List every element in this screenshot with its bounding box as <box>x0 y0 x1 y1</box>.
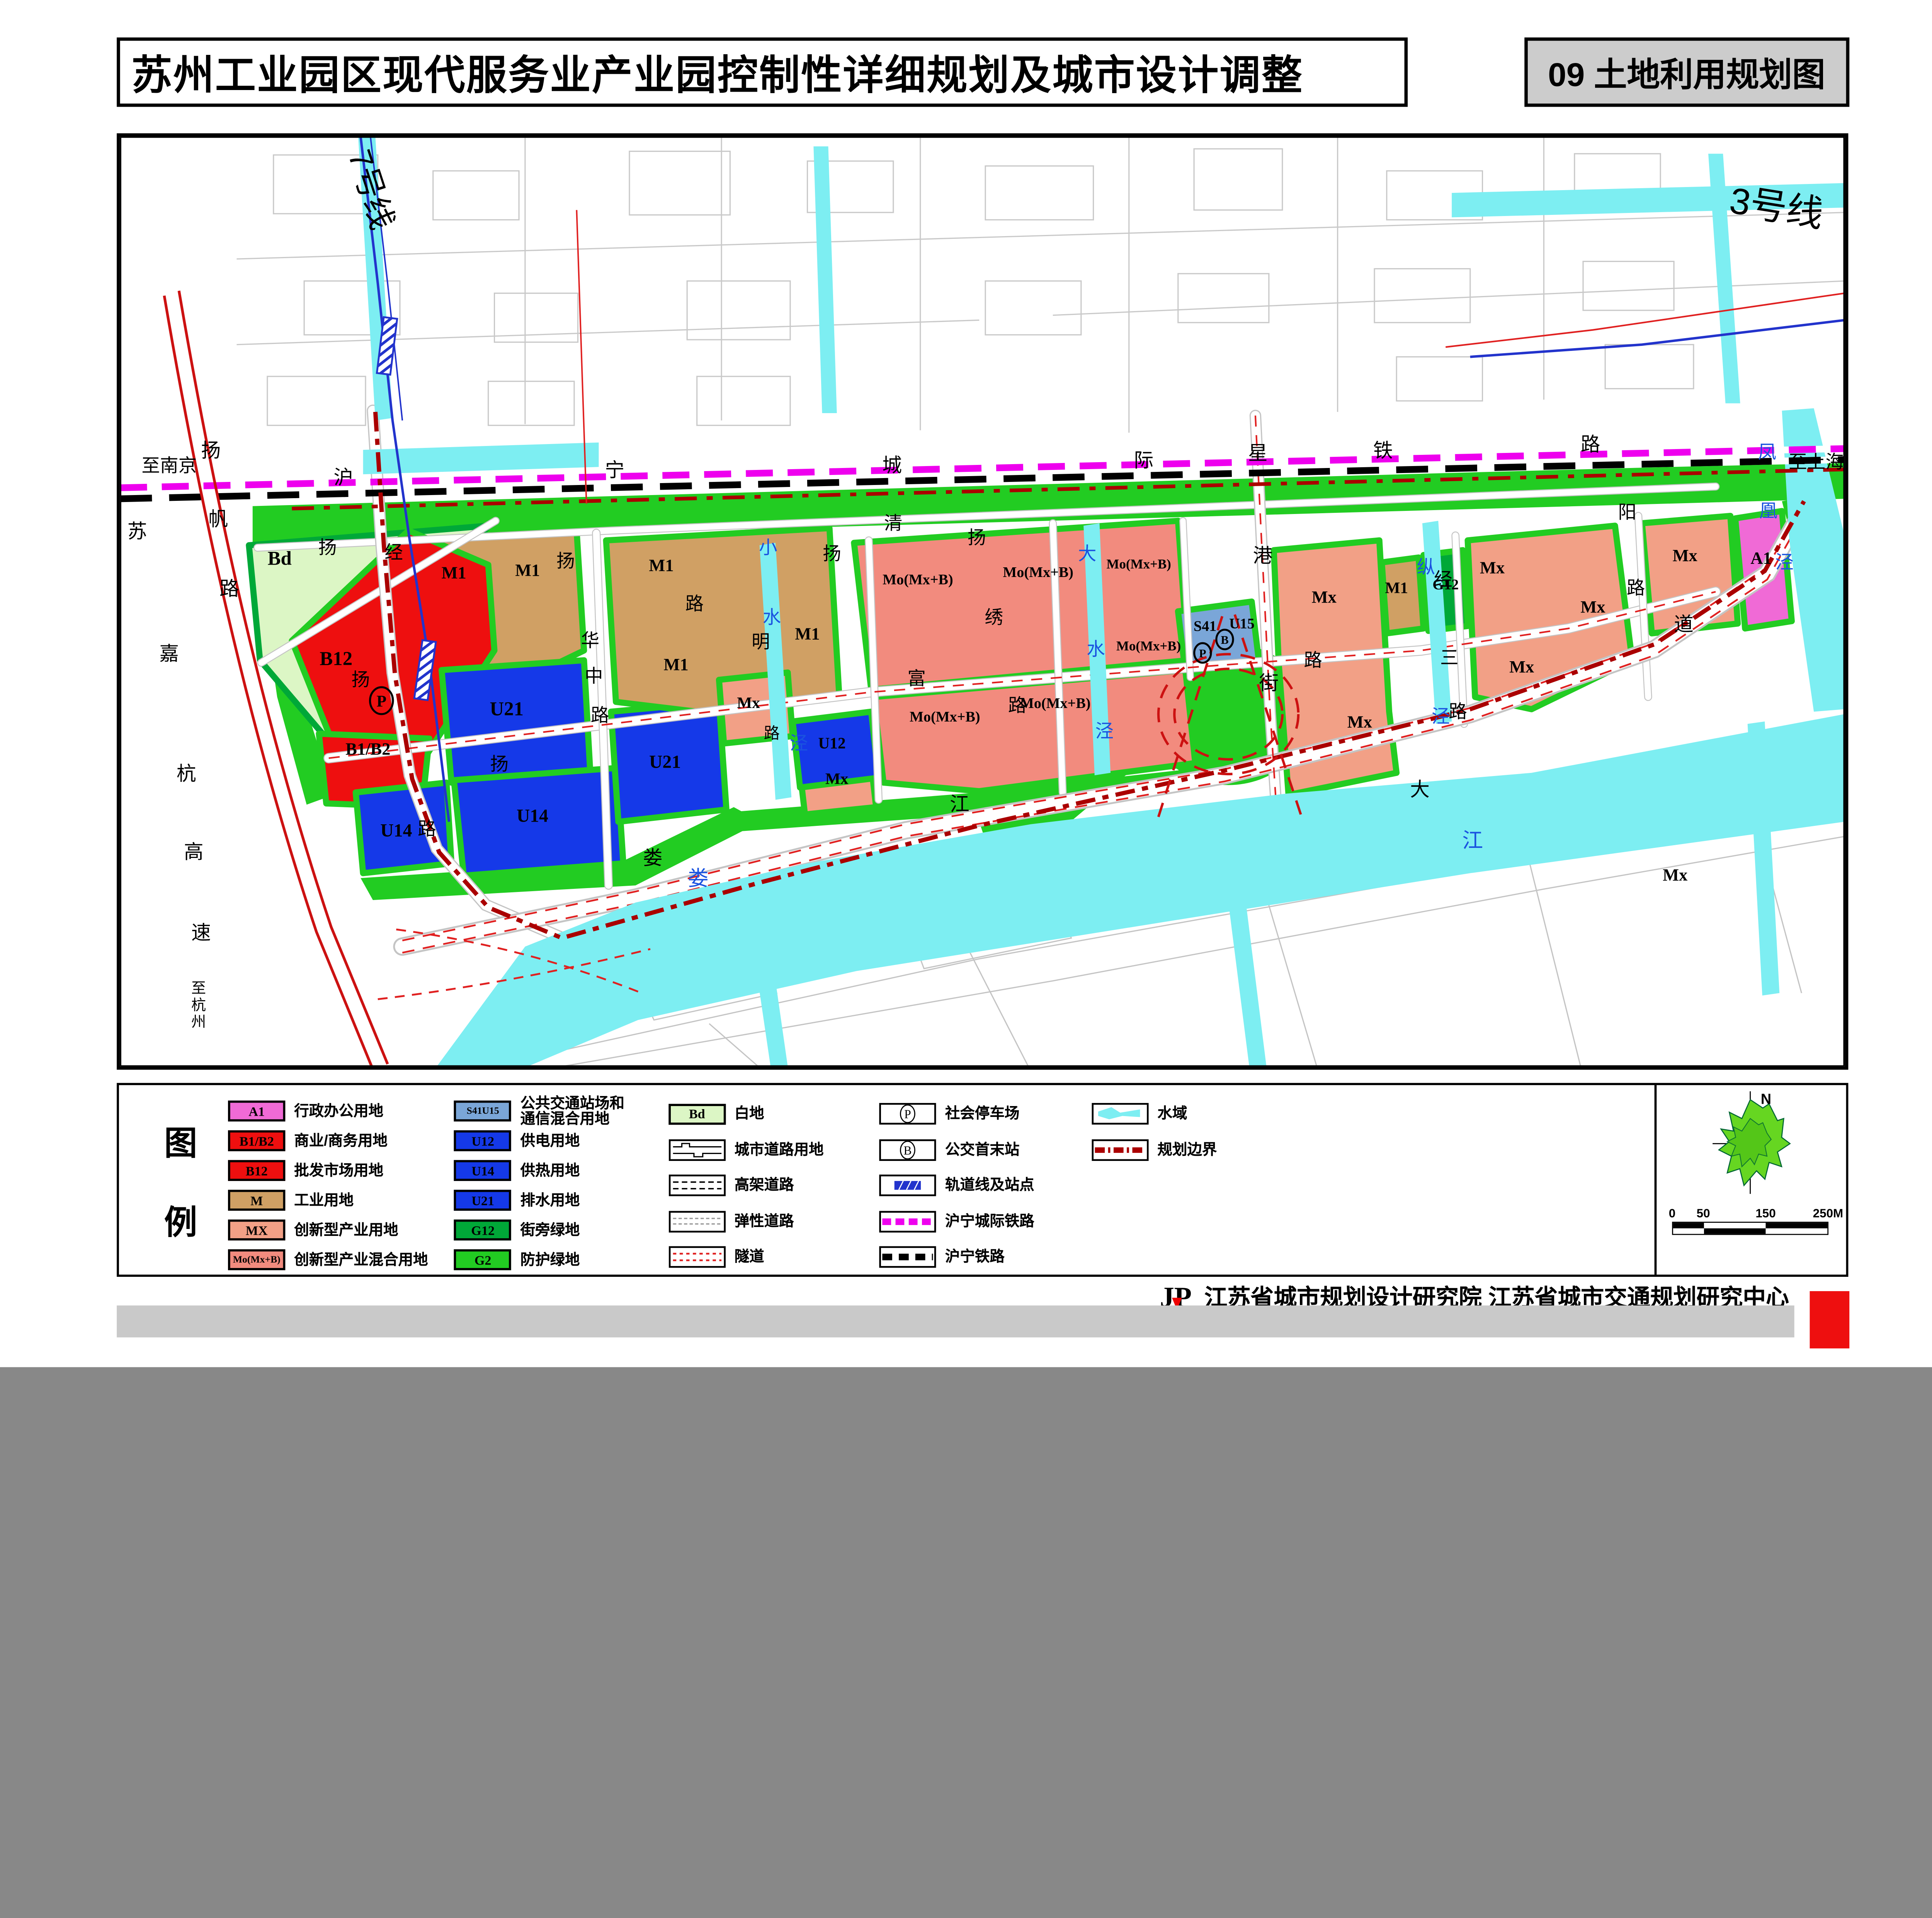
footer-bar <box>117 1305 1794 1337</box>
zone-code-label: Mo(Mx+B) <box>883 572 954 588</box>
zone-code-label: Mx <box>1348 712 1372 731</box>
legend-column: S41U15公共交通站场和 通信混合用地U12供电用地U14供热用地U21排水用… <box>454 1096 624 1275</box>
scalebar-tick: 50 <box>1697 1208 1710 1221</box>
legend-item: 规划边界 <box>1091 1132 1217 1168</box>
map-label: 嘉 <box>160 642 179 664</box>
map-label: 明 <box>752 632 770 652</box>
legend-label: 排水用地 <box>520 1193 580 1208</box>
map-label: 速 <box>192 921 211 943</box>
map-label: 宁 <box>605 459 625 481</box>
legend-label: 供热用地 <box>520 1163 580 1178</box>
zone-code-label: M1 <box>795 624 820 643</box>
map-label: 经 <box>385 542 403 563</box>
map-label: 娄 <box>688 867 709 890</box>
map-label: 路 <box>1449 701 1468 722</box>
map-label: 富 <box>908 669 926 689</box>
map-label: 路 <box>1581 433 1600 455</box>
map-label: 至上海 <box>1789 452 1844 472</box>
zone-code-label: Mo(Mx+B) <box>910 708 981 725</box>
map-label: 杭 <box>177 762 197 784</box>
legend-item: G2防护绿地 <box>454 1245 624 1275</box>
legend-item: 沪宁铁路 <box>879 1239 1034 1275</box>
legend-label: 商业/商务用地 <box>294 1133 388 1149</box>
map-label: 港 <box>1253 545 1273 567</box>
legend-chip-m: M <box>228 1190 285 1211</box>
legend-item: Bd白地 <box>668 1096 824 1132</box>
compass-cell: N 050150250M <box>1660 1089 1841 1271</box>
zone-code-label: B1/B2 <box>346 739 391 758</box>
map-label: 清 <box>884 513 903 533</box>
zone-code-label: U12 <box>818 734 846 752</box>
legend-chip-g2: G2 <box>454 1249 512 1270</box>
map-label: 苏 <box>128 520 148 542</box>
zone-code-label: M1 <box>664 655 689 674</box>
legend-label: 公共交通站场和 通信混合用地 <box>520 1096 624 1127</box>
map-label: 至南京 <box>142 456 197 476</box>
footer-red-mark <box>1810 1291 1849 1348</box>
legend-label: 批发市场用地 <box>294 1163 383 1178</box>
sheet-label: 09 土地利用规划图 <box>1548 48 1825 96</box>
legend: 图 例 A1行政办公用地B1/B2商业/商务用地B12批发市场用地M工业用地MX… <box>117 1083 1848 1277</box>
map-label: 城 <box>883 454 902 476</box>
legend-item: MX创新型产业用地 <box>228 1215 428 1245</box>
zone-code-label: U21 <box>490 698 524 720</box>
legend-label: 轨道线及站点 <box>945 1178 1034 1193</box>
legend-label: 白地 <box>735 1106 764 1122</box>
zone-code-label: Mo(Mx+B) <box>1003 564 1074 580</box>
zone-code-label: M1 <box>515 560 540 580</box>
icon-letter: B <box>1221 633 1229 647</box>
legend-label: 工业用地 <box>294 1193 354 1208</box>
map-label: 泾 <box>1432 706 1451 727</box>
map-label: 路 <box>591 705 610 725</box>
legend-item: 高架道路 <box>668 1168 824 1204</box>
zone-code-label: M1 <box>442 563 466 582</box>
map-label: 扬 <box>490 754 509 774</box>
legend-symbol-railway <box>879 1246 936 1268</box>
legend-item: 轨道线及站点 <box>879 1168 1034 1204</box>
icon-letter: P <box>1199 647 1207 660</box>
svg-text:P: P <box>904 1108 911 1122</box>
zone-code-label: Mo(Mx+B) <box>1117 638 1181 654</box>
zone-code-label: U14 <box>381 820 412 841</box>
legend-item: 水域 <box>1091 1096 1217 1132</box>
legend-label: 高架道路 <box>735 1178 794 1193</box>
map-label: 凰 <box>1760 501 1778 521</box>
zone-code-label: B12 <box>320 648 353 669</box>
legend-symbol-rail <box>879 1175 936 1197</box>
legend-item: U14供热用地 <box>454 1156 624 1186</box>
map-label: 阳 <box>1618 502 1637 522</box>
page-title-box: 苏州工业园区现代服务业产业园控制性详细规划及城市设计调整 <box>117 37 1408 106</box>
map-label: 水 <box>1087 639 1105 660</box>
zone-code-label: Bd <box>268 547 292 569</box>
zone-code-label: Mx <box>826 769 849 787</box>
scalebar-tick: 250M <box>1813 1208 1843 1221</box>
map-label: 扬 <box>201 439 221 461</box>
icon-letter: P <box>377 693 387 710</box>
legend-symbol-tunnel <box>668 1246 726 1268</box>
map-label: 水 <box>763 607 781 628</box>
legend-chip-mx: MX <box>228 1220 285 1241</box>
legend-label: 创新型产业用地 <box>294 1222 398 1238</box>
legend-chip-u12: U12 <box>454 1130 512 1151</box>
zone-code-label: Mo(Mx+B) <box>1020 695 1091 711</box>
legend-label: 规划边界 <box>1157 1142 1217 1158</box>
legend-item: P社会停车场 <box>879 1096 1034 1132</box>
legend-symbol-boundary <box>1091 1139 1148 1161</box>
zone-code-label: Mx <box>1312 587 1337 606</box>
legend-symbol-road <box>668 1139 726 1161</box>
legend-item: B公交首末站 <box>879 1132 1034 1168</box>
map-label: 娄 <box>643 847 663 869</box>
compass-rose: N <box>1708 1089 1792 1203</box>
legend-symbol-pcircle: B <box>879 1139 936 1161</box>
map-label: 大 <box>1410 778 1430 800</box>
zone-code-label: Mx <box>1673 546 1697 565</box>
legend-item: 沪宁城际铁路 <box>879 1204 1034 1240</box>
legend-label: 弹性道路 <box>735 1214 794 1229</box>
map-label: 泾 <box>1776 552 1794 573</box>
legend-label: 防护绿地 <box>520 1252 580 1268</box>
map-label: 路 <box>418 819 437 839</box>
map-label: 纵 <box>1417 557 1435 577</box>
legend-chip-g12: G12 <box>454 1220 512 1241</box>
zone-code-label: Mx <box>737 694 760 711</box>
map-drawing: PPB 7号线3号线至南京至上海至杭州苏嘉杭高速扬帆路沪宁城际铁路星港街扬经扬扬… <box>121 136 1845 1066</box>
map-label: 高 <box>184 841 204 863</box>
legend-item: B12批发市场用地 <box>228 1156 428 1186</box>
legend-column: 水域规划边界 <box>1091 1096 1217 1168</box>
legend-item: G12街旁绿地 <box>454 1215 624 1245</box>
map-label: 星 <box>1248 442 1268 464</box>
legend-symbol-hsr <box>879 1211 936 1233</box>
legend-chip-b12: B12 <box>228 1160 285 1181</box>
map-label: 道 <box>1674 613 1694 635</box>
legend-column: A1行政办公用地B1/B2商业/商务用地B12批发市场用地M工业用地MX创新型产… <box>228 1096 428 1275</box>
legend-item: A1行政办公用地 <box>228 1096 428 1126</box>
sheet-number-box: 09 土地利用规划图 <box>1524 37 1849 106</box>
map-label: 大 <box>1078 544 1097 564</box>
map-label: 扬 <box>823 544 842 564</box>
map-label: 扬 <box>352 670 370 690</box>
scalebar: 050150250M <box>1672 1208 1828 1235</box>
legend-column: Bd白地城市道路用地高架道路弹性道路隧道 <box>668 1096 824 1275</box>
zone-code-label: U15 <box>1230 616 1255 632</box>
legend-item: 弹性道路 <box>668 1204 824 1240</box>
legend-heading: 图 例 <box>164 1100 197 1259</box>
legend-chip-b1b2: B1/B2 <box>228 1130 285 1151</box>
legend-symbol-elastic <box>668 1211 726 1233</box>
map-label: 际 <box>1134 449 1154 471</box>
legend-chip-bd: Bd <box>668 1104 726 1125</box>
legend-heading-char: 图 <box>164 1116 197 1164</box>
legend-label: 街旁绿地 <box>520 1222 580 1238</box>
background-blocks-north <box>237 136 1845 432</box>
map-label: 泾 <box>1095 721 1114 742</box>
legend-label: 创新型产业混合用地 <box>294 1252 428 1268</box>
map-label: 路 <box>1304 650 1323 671</box>
legend-label: 水域 <box>1157 1106 1187 1122</box>
legend-label: 行政办公用地 <box>294 1103 383 1119</box>
map-label: 绣 <box>985 607 1003 628</box>
map-label: 街 <box>1259 672 1279 694</box>
map-label: 扬 <box>319 538 337 558</box>
legend-item: 隧道 <box>668 1239 824 1275</box>
legend-heading-char: 例 <box>164 1195 197 1244</box>
zone-code-label: Mo(Mx+B) <box>1107 557 1171 572</box>
map-label: 三 <box>1440 648 1459 668</box>
map-label: 沪 <box>334 466 354 488</box>
north-label: N <box>1760 1091 1771 1108</box>
map-label: 江 <box>950 793 970 815</box>
zone-code-label: Mx <box>1480 558 1505 577</box>
zone-code-label: Mx <box>1663 865 1688 884</box>
map-label: 路 <box>1627 578 1646 598</box>
map-label: 泾 <box>790 733 808 754</box>
legend-label: 供电用地 <box>520 1133 580 1149</box>
scalebar-bar <box>1672 1222 1828 1235</box>
zone-code-label: M1 <box>1385 579 1408 596</box>
scalebar-tick: 150 <box>1755 1208 1776 1221</box>
map-label: 至杭州 <box>192 980 206 1030</box>
map-label: 路 <box>764 724 780 742</box>
legend-item: Mo(Mx+B)创新型产业混合用地 <box>228 1245 428 1275</box>
map-label: 帆 <box>209 508 228 530</box>
zone-code-label: Mx <box>1510 657 1534 676</box>
map-label: 扬 <box>968 528 986 548</box>
map-label: 江 <box>1463 829 1483 852</box>
zone-code-label: M1 <box>649 555 674 575</box>
plan-sheet: 苏州工业园区现代服务业产业园控制性详细规划及城市设计调整 09 土地利用规划图 <box>0 0 1932 1367</box>
zone-code-label: S41 <box>1194 618 1217 634</box>
map-label: 华 <box>581 630 600 651</box>
map-canvas: PPB 7号线3号线至南京至上海至杭州苏嘉杭高速扬帆路沪宁城际铁路星港街扬经扬扬… <box>117 133 1848 1070</box>
map-label: 中 <box>585 666 604 686</box>
zone-code-label: U14 <box>517 806 549 826</box>
zone-code-label: U21 <box>650 752 681 772</box>
legend-divider <box>1654 1085 1656 1275</box>
legend-column: P社会停车场B公交首末站轨道线及站点沪宁城际铁路沪宁铁路 <box>879 1096 1034 1275</box>
legend-chip-u14: U14 <box>454 1160 512 1181</box>
svg-text:B: B <box>904 1144 912 1157</box>
scalebar-tick: 0 <box>1669 1208 1675 1221</box>
legend-item: U21排水用地 <box>454 1186 624 1215</box>
legend-item: M工业用地 <box>228 1186 428 1215</box>
legend-chip-a1: A1 <box>228 1101 285 1122</box>
legend-label: 城市道路用地 <box>735 1142 824 1158</box>
legend-chip-momxb: Mo(Mx+B) <box>228 1249 285 1270</box>
legend-label: 沪宁城际铁路 <box>945 1214 1034 1229</box>
map-label: 扬 <box>557 551 575 572</box>
map-label: 铁 <box>1374 439 1393 461</box>
zone-code-label: A1 <box>1751 548 1772 567</box>
legend-label: 隧道 <box>735 1250 764 1265</box>
legend-chip-u21: U21 <box>454 1190 512 1211</box>
legend-chip-s41u15: S41U15 <box>454 1101 512 1122</box>
legend-item: 城市道路用地 <box>668 1132 824 1168</box>
legend-item: U12供电用地 <box>454 1126 624 1156</box>
legend-label: 社会停车场 <box>945 1106 1019 1122</box>
map-label: 路 <box>220 577 240 599</box>
legend-symbol-pcircle: P <box>879 1103 936 1125</box>
zone-code-label: G12 <box>1433 577 1459 593</box>
map-label: 小 <box>759 538 778 558</box>
map-label: 凤 <box>1758 442 1777 463</box>
legend-symbol-elevated <box>668 1175 726 1197</box>
legend-label: 沪宁铁路 <box>945 1250 1005 1265</box>
legend-label: 公交首末站 <box>945 1142 1019 1158</box>
page-title: 苏州工业园区现代服务业产业园控制性详细规划及城市设计调整 <box>131 42 1303 102</box>
map-label: 路 <box>685 594 704 614</box>
zone-code-label: Mx <box>1581 597 1605 616</box>
legend-symbol-water <box>1091 1103 1148 1125</box>
legend-item: B1/B2商业/商务用地 <box>228 1126 428 1156</box>
legend-item: S41U15公共交通站场和 通信混合用地 <box>454 1096 624 1126</box>
